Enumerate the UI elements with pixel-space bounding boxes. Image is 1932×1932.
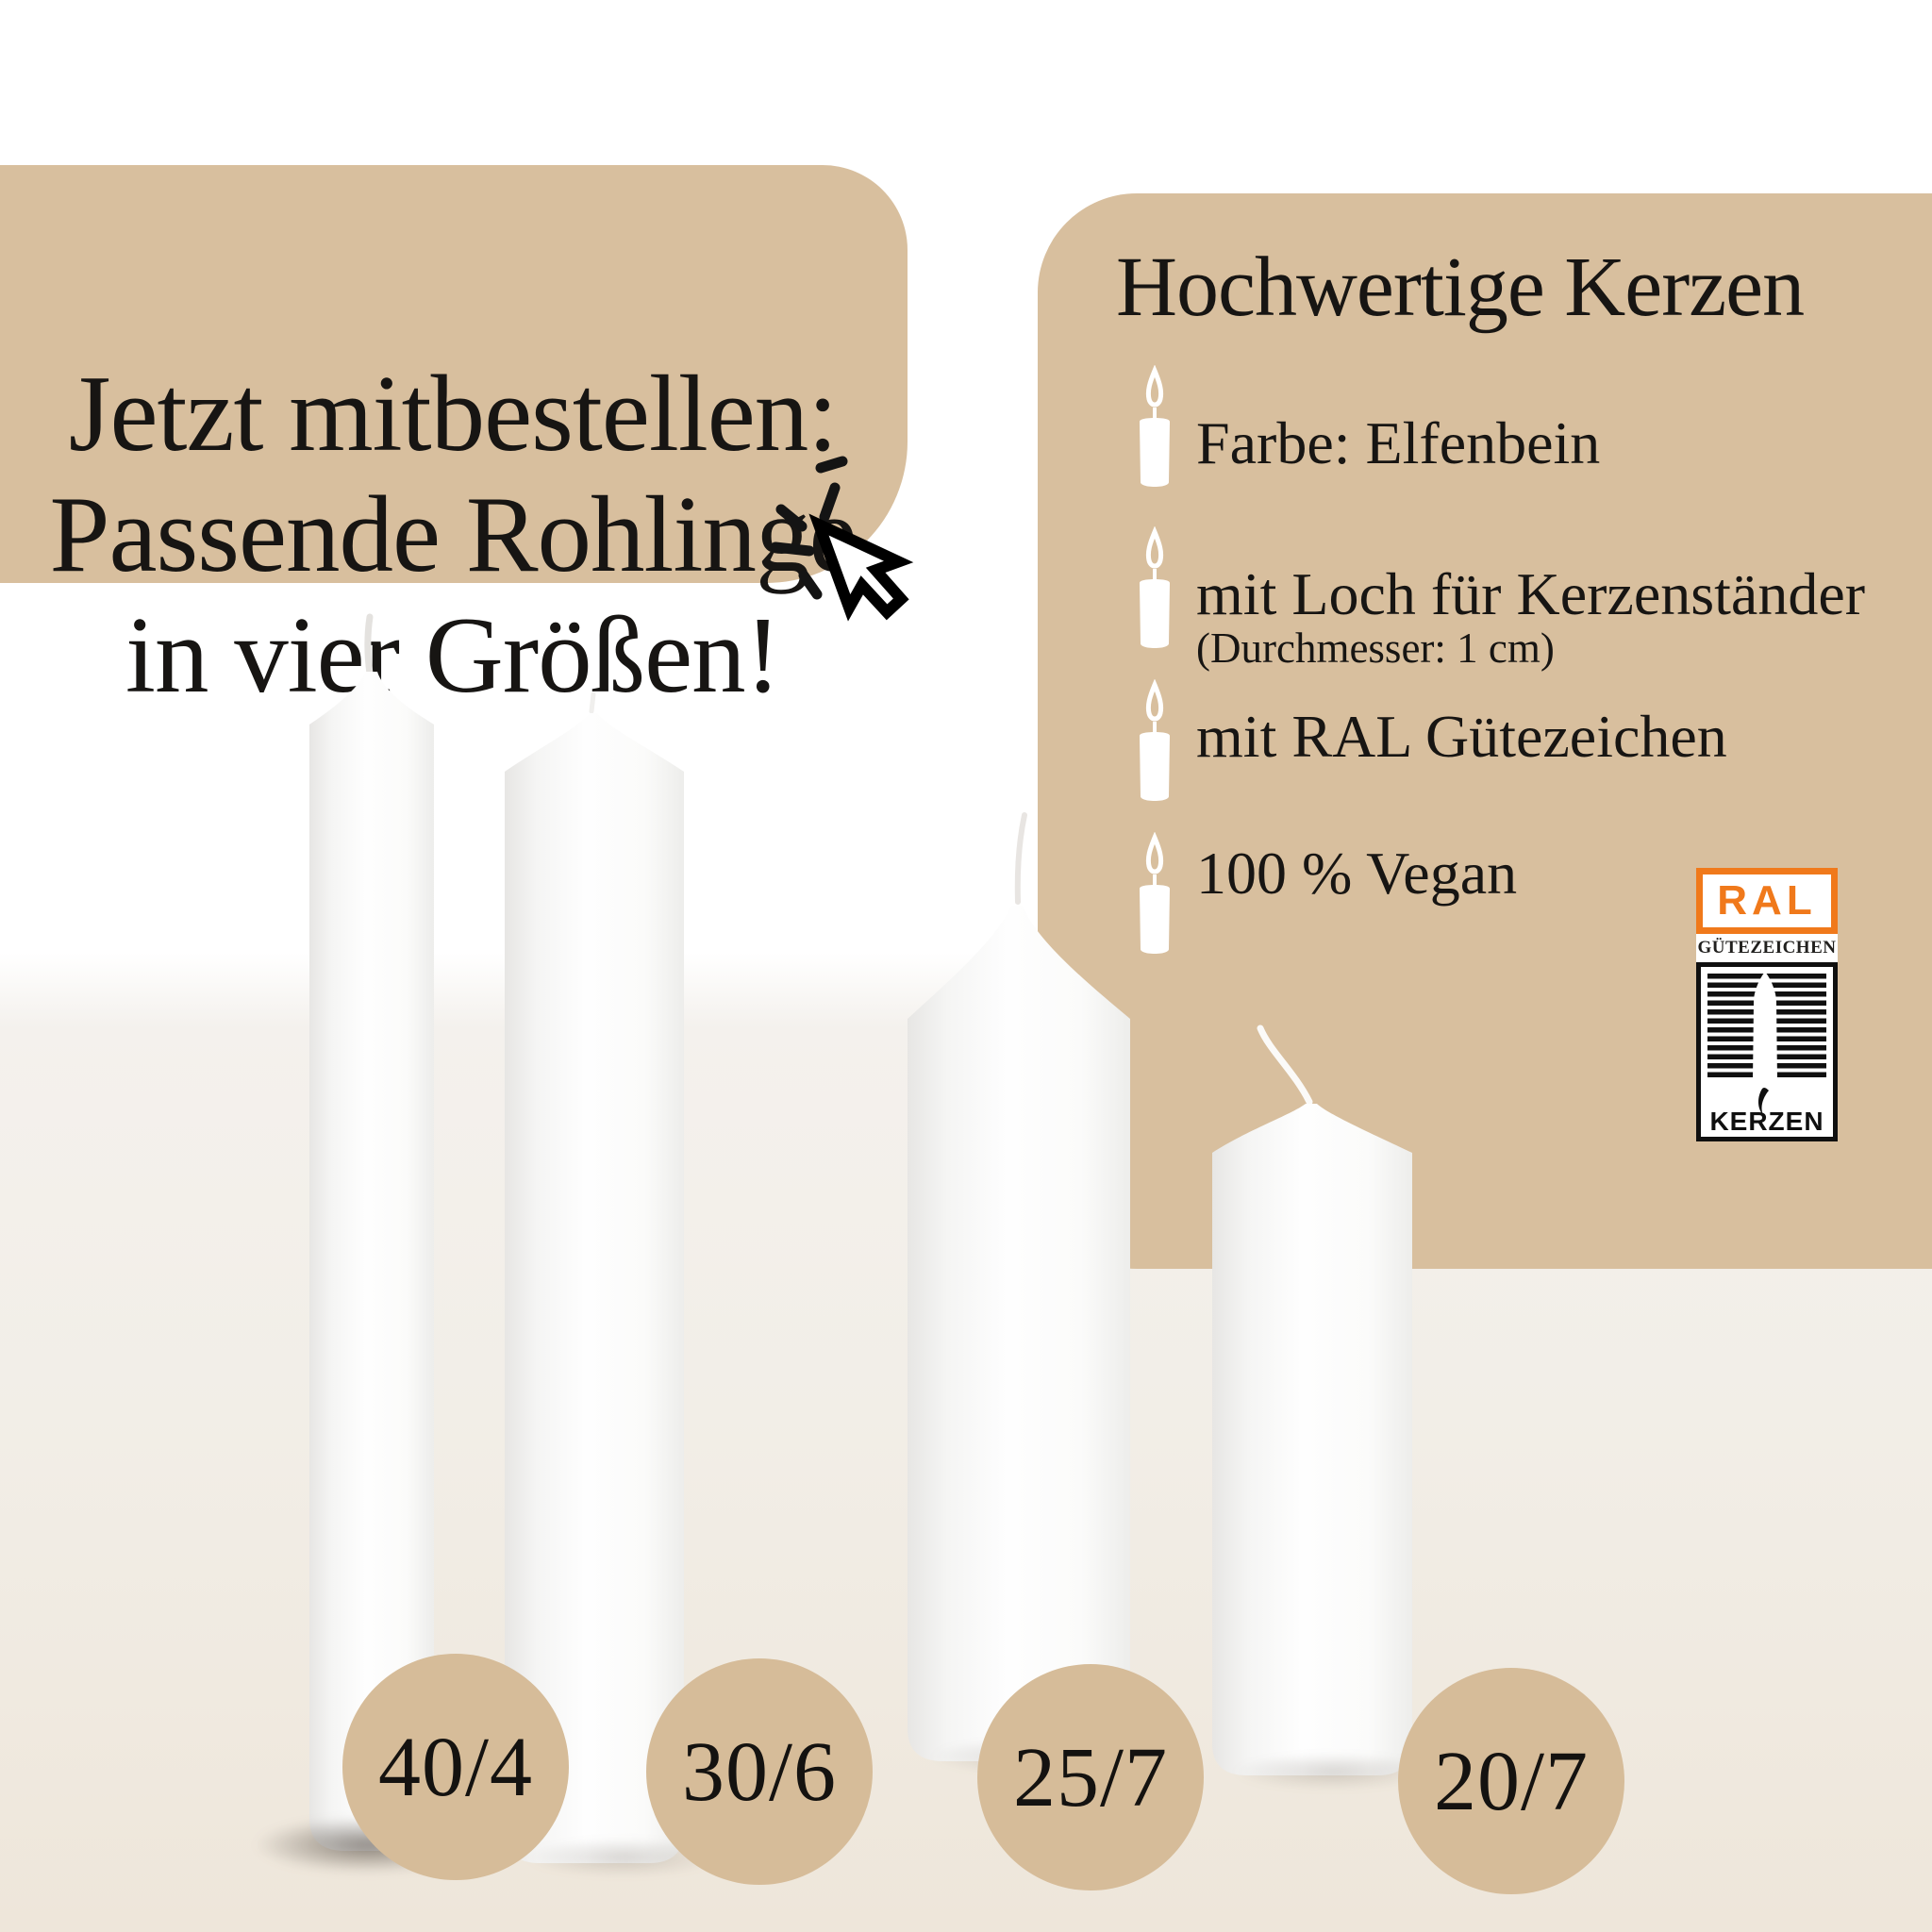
size-label: 30/6	[682, 1724, 837, 1821]
size-label: 40/4	[378, 1719, 533, 1816]
candle-with-flame-icon	[1128, 526, 1181, 649]
size-badge-40-4: 40/4	[342, 1654, 569, 1880]
candle-with-flame-icon	[1128, 832, 1181, 955]
wick	[1260, 1028, 1309, 1102]
candle-silhouette	[1753, 972, 1777, 1081]
kerzen-label: KERZEN	[1709, 1107, 1824, 1136]
wick	[1018, 815, 1024, 902]
size-badge-20-7: 20/7	[1398, 1668, 1624, 1894]
ral-kerzen-emblem: KERZEN	[1696, 962, 1838, 1141]
features-panel: Hochwertige Kerzen Farbe: Elfenbein mit …	[1038, 193, 1932, 1269]
feature-item-color: Farbe: Elfenbein	[1196, 413, 1600, 474]
feature-item-hole: mit Loch für Kerzenständer	[1196, 564, 1865, 625]
candle-photo-25-7	[904, 804, 1134, 1766]
ral-guetezeichen-label: GÜTEZEICHEN	[1696, 934, 1838, 962]
size-label: 20/7	[1434, 1733, 1589, 1830]
candle-product-infographic: Jetzt mitbestellen: Passende Rohlinge in…	[0, 0, 1932, 1932]
wick	[591, 694, 593, 711]
candle-with-flame-icon	[1128, 679, 1181, 802]
candle-photo-20-7	[1207, 1019, 1417, 1785]
ral-quality-badge: RAL GÜTEZEICHEN	[1696, 868, 1838, 1146]
size-badge-30-6: 30/6	[646, 1658, 873, 1885]
features-title: Hochwertige Kerzen	[1116, 239, 1804, 336]
feature-item-ral: mit RAL Gütezeichen	[1196, 707, 1727, 767]
size-badge-25-7: 25/7	[977, 1664, 1204, 1890]
feature-item-hole-note: (Durchmesser: 1 cm)	[1196, 627, 1555, 670]
wick	[368, 617, 370, 674]
feature-item-vegan: 100 % Vegan	[1196, 843, 1517, 904]
ral-logo: RAL	[1696, 868, 1838, 934]
mouse-click-cursor-icon	[745, 434, 972, 670]
candle-with-flame-icon	[1128, 365, 1181, 488]
size-label: 25/7	[1013, 1729, 1168, 1826]
